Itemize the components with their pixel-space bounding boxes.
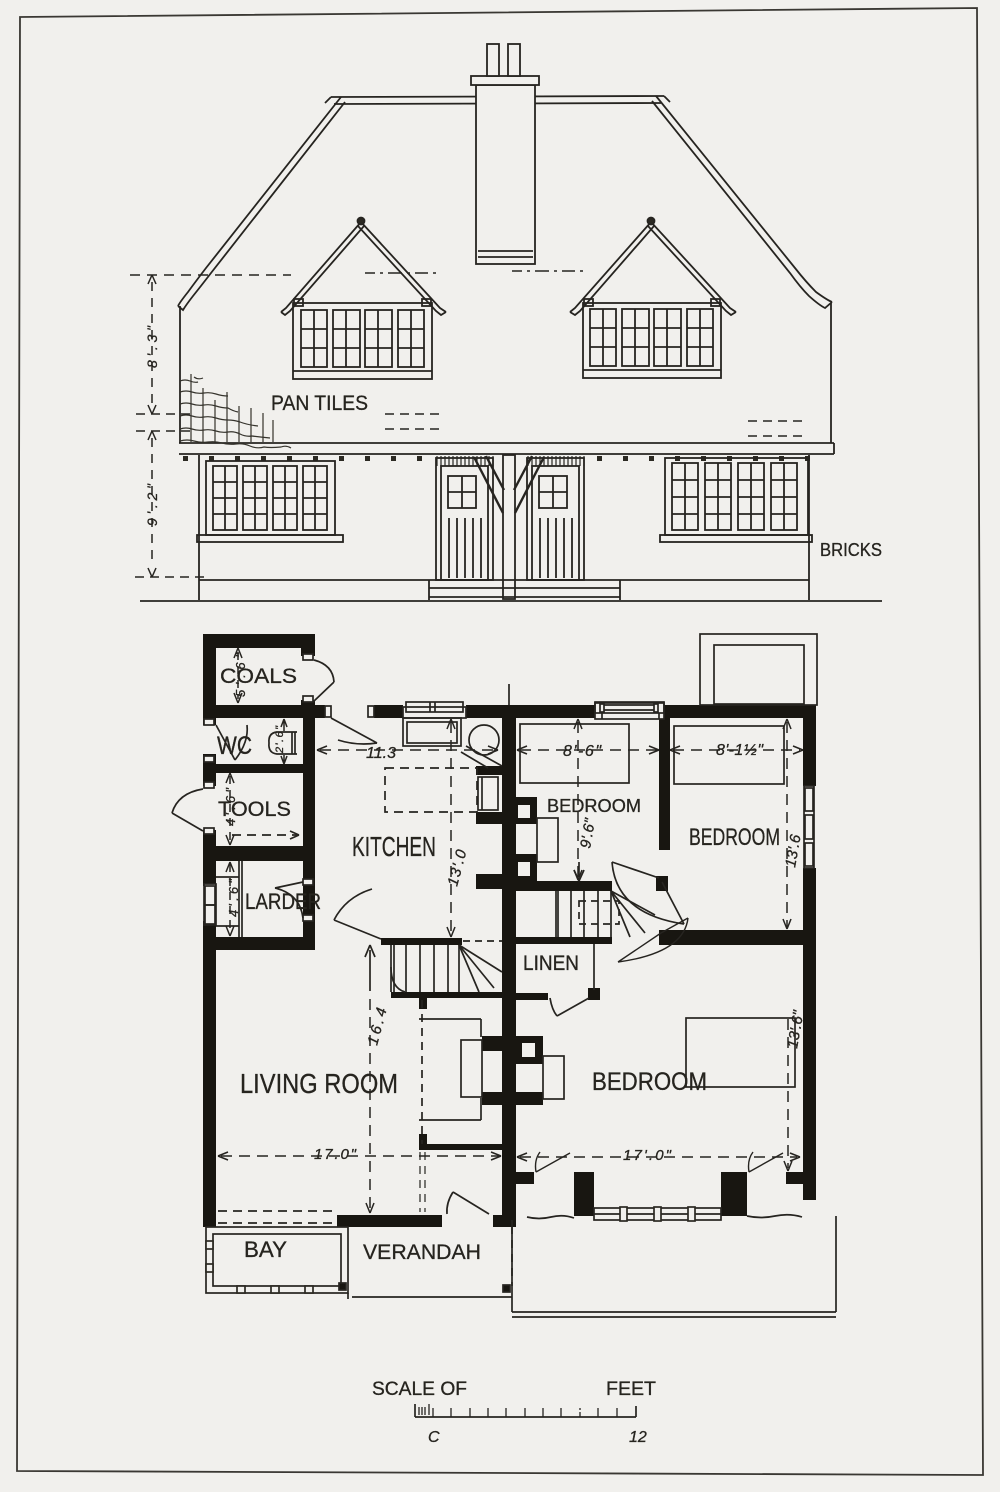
svg-text:LARDER: LARDER bbox=[245, 889, 321, 914]
svg-text:4'.6": 4'.6" bbox=[226, 878, 241, 917]
svg-text:SCALE OF: SCALE OF bbox=[372, 1379, 467, 1400]
svg-text:BEDROOM: BEDROOM bbox=[547, 796, 641, 816]
svg-text:8'.3": 8'.3" bbox=[144, 325, 160, 368]
svg-text:9'.2": 9'.2" bbox=[144, 483, 160, 526]
svg-text:11.3: 11.3 bbox=[366, 745, 396, 762]
svg-text:COALS: COALS bbox=[220, 665, 297, 688]
svg-text:BEDROOM: BEDROOM bbox=[689, 824, 780, 851]
svg-text:17.0": 17.0" bbox=[314, 1146, 357, 1163]
svg-text:8'-6": 8'-6" bbox=[563, 743, 602, 760]
svg-text:12: 12 bbox=[629, 1429, 647, 1446]
svg-text:8'-1½": 8'-1½" bbox=[716, 742, 764, 759]
svg-text:2'.6": 2'.6" bbox=[274, 725, 286, 754]
svg-text:BEDROOM: BEDROOM bbox=[592, 1068, 707, 1096]
svg-text:BAY: BAY bbox=[244, 1237, 287, 1262]
svg-text:WC: WC bbox=[217, 732, 252, 760]
svg-text:LIVING ROOM: LIVING ROOM bbox=[240, 1068, 398, 1099]
svg-text:FEET: FEET bbox=[606, 1379, 656, 1400]
svg-text:TOOLS: TOOLS bbox=[218, 798, 291, 821]
svg-text:BRICKS: BRICKS bbox=[820, 540, 882, 560]
svg-text:PAN TILES: PAN TILES bbox=[271, 392, 368, 415]
svg-text:C: C bbox=[428, 1429, 440, 1446]
svg-text:VERANDAH: VERANDAH bbox=[363, 1241, 481, 1264]
svg-text:LINEN: LINEN bbox=[523, 952, 579, 975]
svg-text:KITCHEN: KITCHEN bbox=[352, 831, 436, 862]
